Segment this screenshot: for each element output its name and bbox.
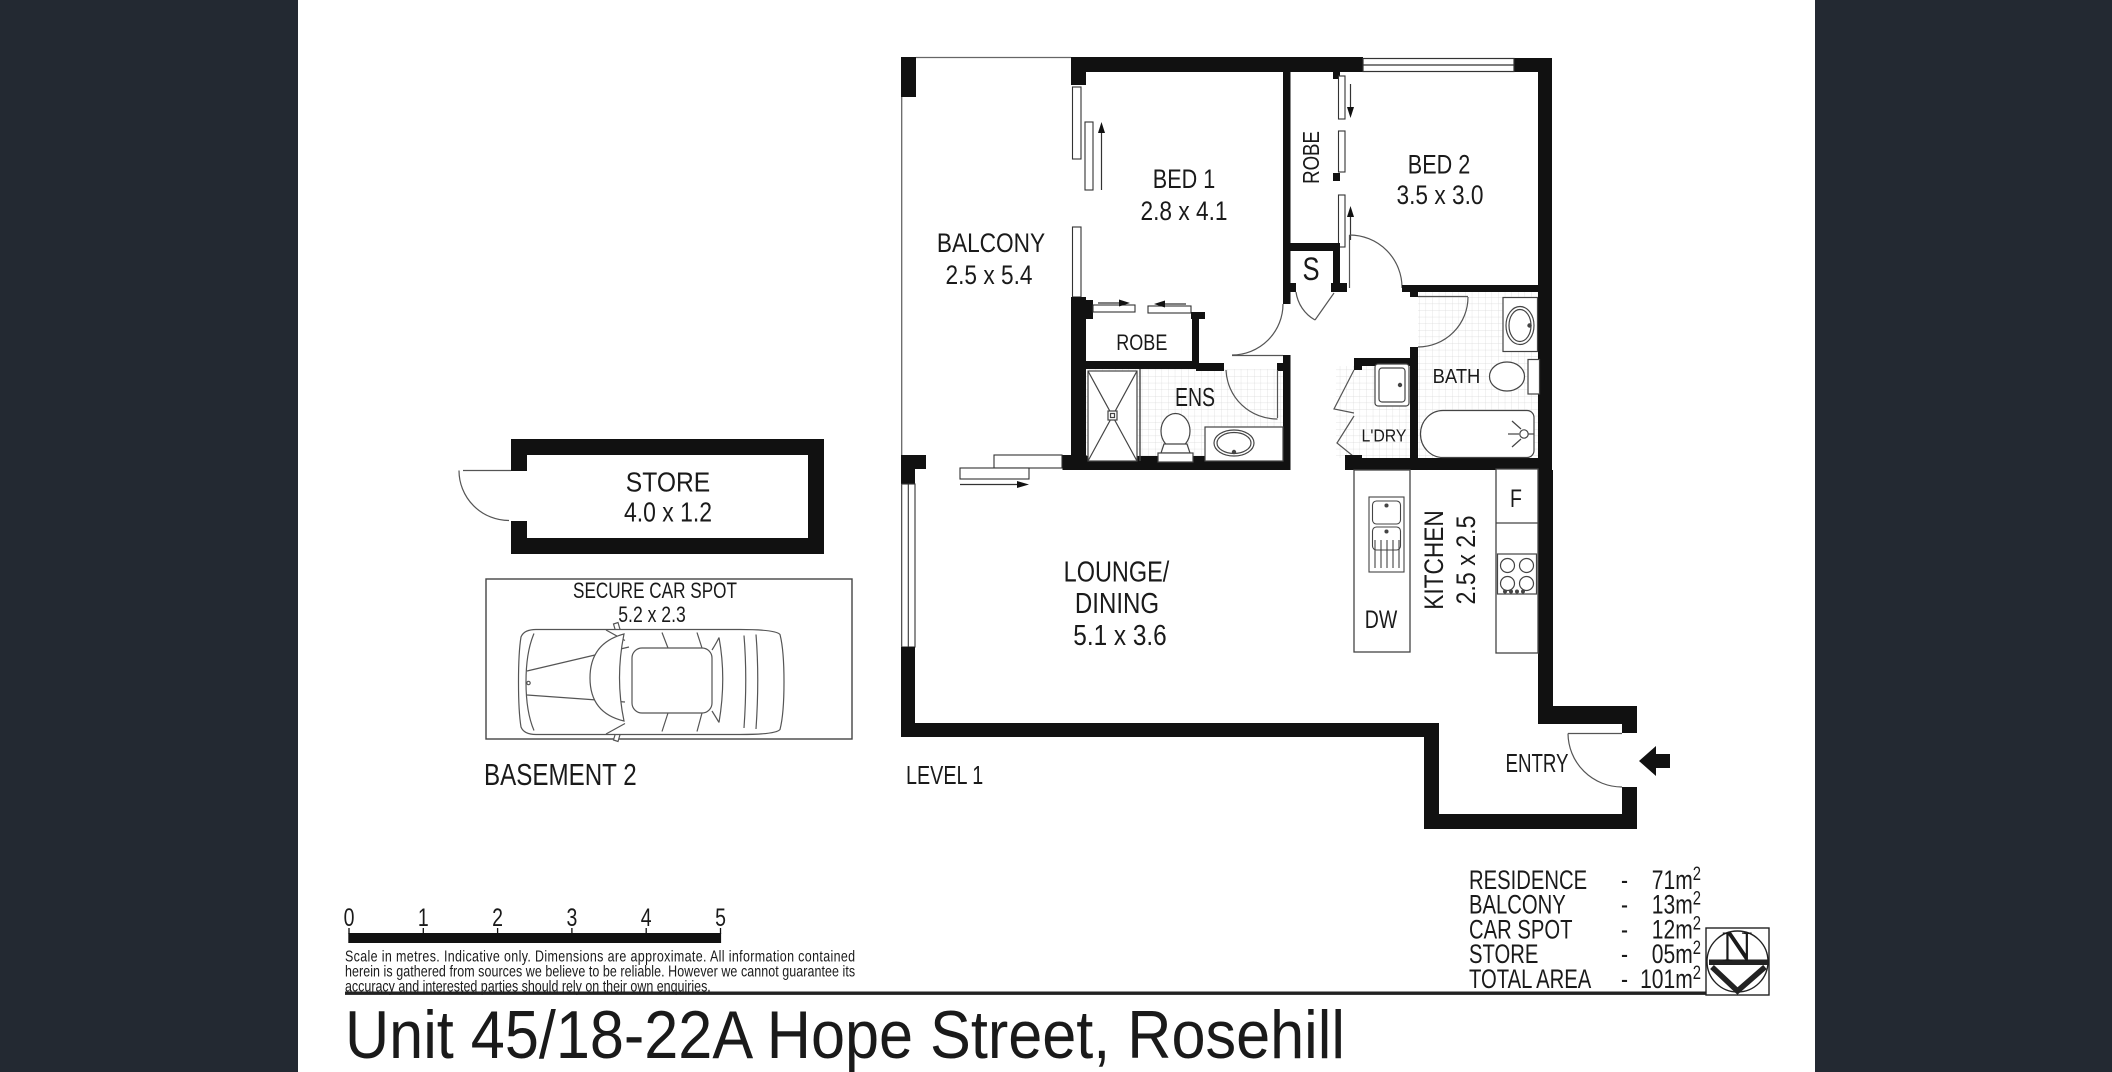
svg-text:0: 0 bbox=[344, 904, 355, 932]
svg-text:5.1 x 3.6: 5.1 x 3.6 bbox=[1073, 619, 1166, 651]
svg-text:3: 3 bbox=[566, 904, 577, 932]
svg-text:Unit 45/18-22A Hope Street, Ro: Unit 45/18-22A Hope Street, Rosehill bbox=[345, 996, 1345, 1072]
svg-text:1: 1 bbox=[418, 904, 429, 932]
svg-text:2.5 x 2.5: 2.5 x 2.5 bbox=[1451, 515, 1481, 604]
svg-text:L'DRY: L'DRY bbox=[1362, 426, 1407, 446]
svg-text:F: F bbox=[1510, 485, 1522, 513]
svg-text:LEVEL 1: LEVEL 1 bbox=[906, 760, 983, 789]
svg-text:BATH: BATH bbox=[1433, 366, 1481, 388]
svg-text:ENTRY: ENTRY bbox=[1505, 748, 1568, 778]
svg-text:DINING: DINING bbox=[1075, 587, 1159, 620]
svg-text:LOUNGE/: LOUNGE/ bbox=[1064, 555, 1170, 588]
svg-text:BASEMENT 2: BASEMENT 2 bbox=[484, 757, 637, 792]
svg-text:2.5 x 5.4: 2.5 x 5.4 bbox=[946, 260, 1033, 290]
svg-text:5: 5 bbox=[715, 904, 726, 932]
svg-text:BALCONY: BALCONY bbox=[937, 228, 1046, 258]
svg-text:DW: DW bbox=[1365, 606, 1398, 634]
svg-text:2: 2 bbox=[492, 904, 503, 932]
svg-text:2.8 x 4.1: 2.8 x 4.1 bbox=[1141, 196, 1228, 226]
svg-text:TOTAL AREA: TOTAL AREA bbox=[1469, 964, 1591, 995]
svg-text:4: 4 bbox=[641, 904, 652, 932]
svg-text:STORE: STORE bbox=[626, 466, 710, 498]
svg-text:3.5 x 3.0: 3.5 x 3.0 bbox=[1397, 180, 1484, 210]
svg-text:KITCHEN: KITCHEN bbox=[1419, 510, 1449, 610]
svg-text:-: - bbox=[1621, 965, 1628, 995]
svg-text:N: N bbox=[1721, 924, 1752, 971]
svg-text:4.0 x 1.2: 4.0 x 1.2 bbox=[624, 497, 712, 528]
svg-text:BED 1: BED 1 bbox=[1153, 165, 1215, 195]
svg-text:5.2 x 2.3: 5.2 x 2.3 bbox=[618, 603, 685, 627]
svg-text:S: S bbox=[1302, 252, 1319, 287]
svg-text:ENS: ENS bbox=[1175, 382, 1215, 411]
svg-text:SECURE CAR SPOT: SECURE CAR SPOT bbox=[573, 579, 737, 604]
svg-text:BED 2: BED 2 bbox=[1408, 150, 1470, 180]
svg-text:101m2: 101m2 bbox=[1640, 962, 1701, 994]
svg-text:ROBE: ROBE bbox=[1299, 131, 1324, 184]
svg-text:ROBE: ROBE bbox=[1116, 331, 1167, 355]
